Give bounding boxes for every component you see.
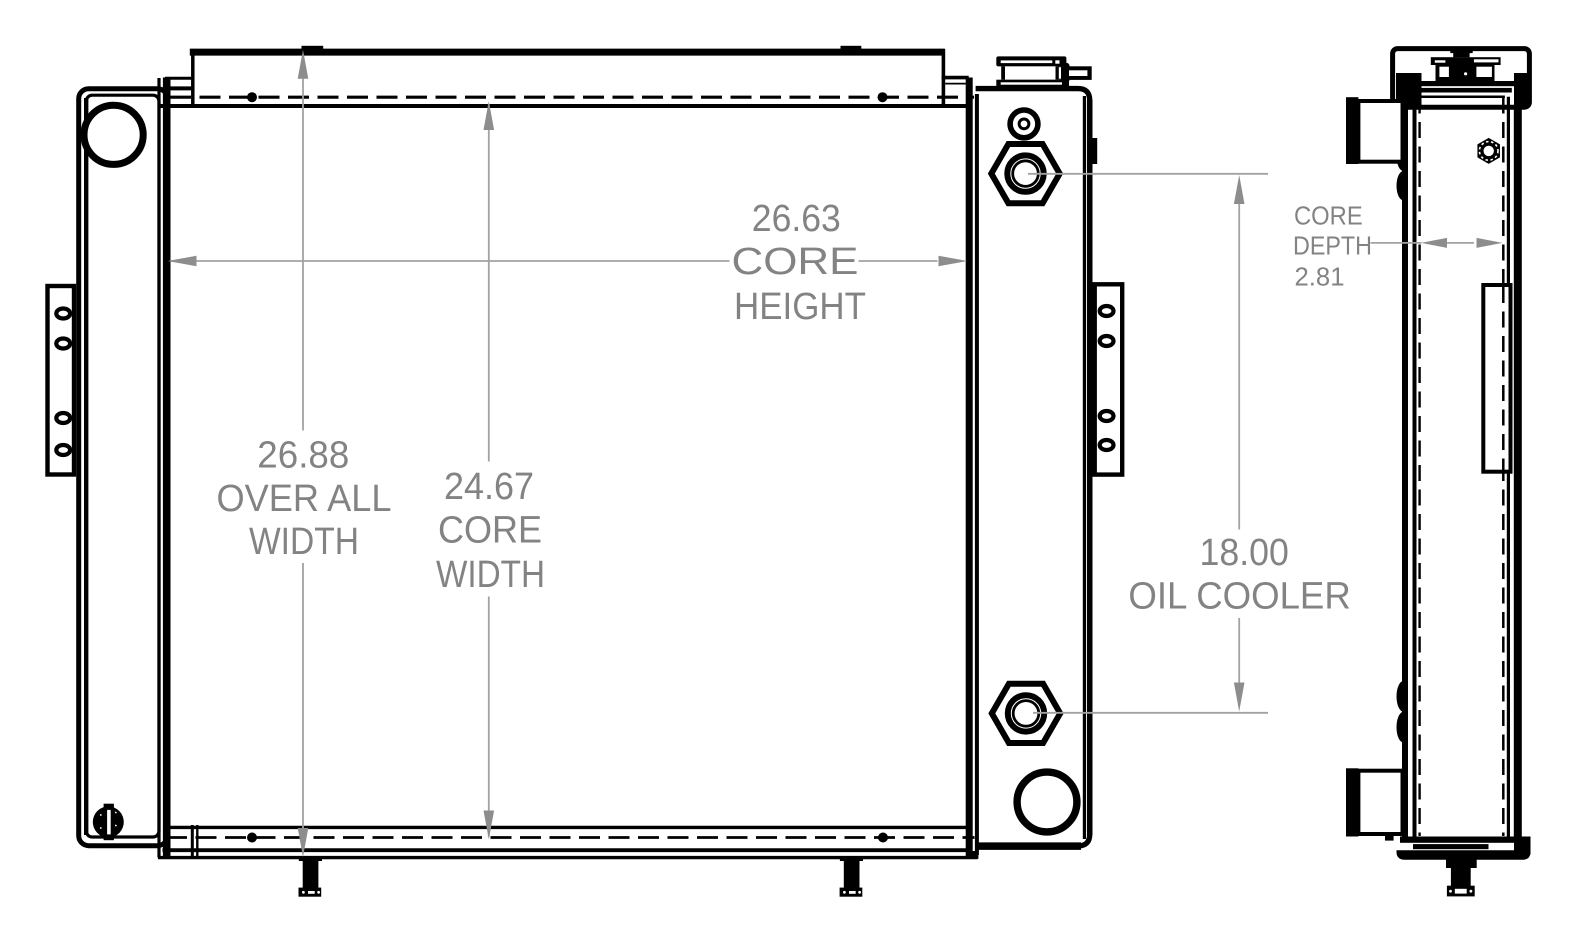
svg-text:WIDTH: WIDTH [436,554,545,596]
svg-text:CORE: CORE [732,241,859,283]
svg-text:DEPTH: DEPTH [1293,231,1372,261]
svg-text:18.00: 18.00 [1200,532,1289,574]
svg-text:26.88: 26.88 [257,435,349,477]
svg-text:OVER ALL: OVER ALL [217,478,392,520]
svg-text:CORE: CORE [438,510,542,552]
svg-text:24.67: 24.67 [444,466,534,508]
svg-text:WIDTH: WIDTH [249,521,359,563]
svg-text:CORE: CORE [1294,200,1363,230]
svg-text:26.63: 26.63 [752,198,841,240]
svg-text:HEIGHT: HEIGHT [734,286,866,328]
svg-text:2.81: 2.81 [1295,262,1345,292]
svg-text:OIL COOLER: OIL COOLER [1128,576,1350,618]
